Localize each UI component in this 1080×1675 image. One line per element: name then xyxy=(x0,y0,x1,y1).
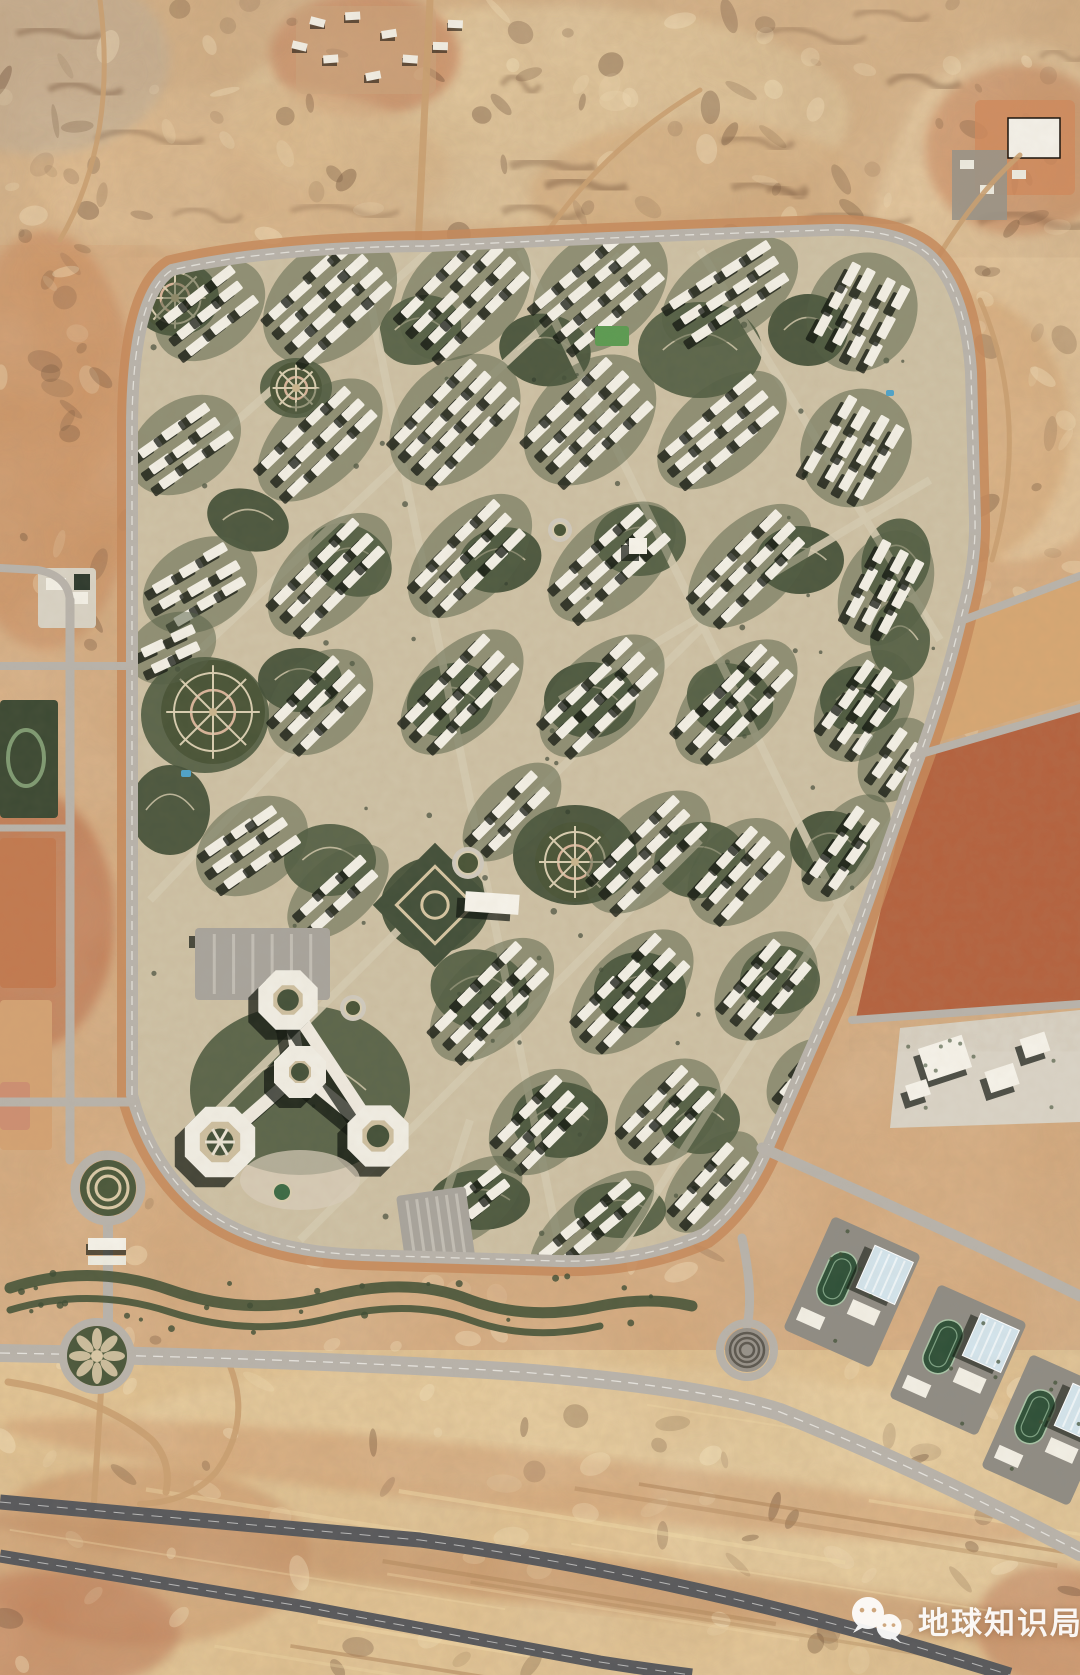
final-grain xyxy=(0,0,1080,1675)
satellite-canvas xyxy=(0,0,1080,1675)
satellite-image: 地球知识局 xyxy=(0,0,1080,1675)
